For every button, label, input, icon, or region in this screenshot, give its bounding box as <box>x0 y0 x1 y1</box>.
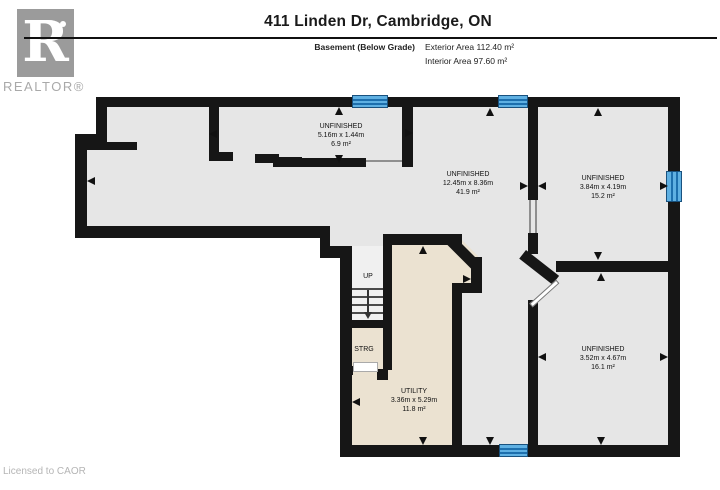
dim-arrow-right-icon <box>660 182 668 190</box>
dim-arrow-left-icon <box>538 182 546 190</box>
door-jamb-line <box>535 200 537 233</box>
wall <box>209 152 233 161</box>
dim-arrow-right-icon <box>463 275 471 283</box>
wall <box>352 320 392 328</box>
window <box>666 171 682 202</box>
window-pane-line <box>499 99 527 101</box>
room-name: UNFINISHED <box>553 345 653 354</box>
room-area: 6.9 m² <box>291 140 391 149</box>
room-area: 41.9 m² <box>418 188 518 197</box>
room-label-unfinished-top-right: UNFINISHED 3.84m x 4.19m 15.2 m² <box>553 174 653 201</box>
room-area: 16.1 m² <box>553 363 653 372</box>
wall <box>383 234 392 370</box>
wall <box>87 142 137 150</box>
wall <box>377 369 388 380</box>
room-dims: 3.52m x 4.67m <box>553 354 653 363</box>
wall <box>528 107 538 200</box>
wall <box>528 233 538 254</box>
window-pane-line <box>500 448 527 450</box>
wall <box>75 226 330 238</box>
wall <box>345 366 353 375</box>
storage-door-opening <box>353 362 378 372</box>
room-name: UNFINISHED <box>418 170 518 179</box>
window-pane-line <box>671 172 673 201</box>
wall <box>452 283 462 445</box>
room-area: 15.2 m² <box>553 192 653 201</box>
dim-arrow-left-icon <box>209 130 217 138</box>
wall <box>402 107 413 167</box>
dim-arrow-down-icon <box>597 437 605 445</box>
room-dims: 12.45m x 8.36m <box>418 179 518 188</box>
header-rule <box>24 37 717 39</box>
room-name: UNFINISHED <box>291 122 391 131</box>
wall <box>96 97 680 107</box>
window-pane-line <box>353 99 387 101</box>
dim-arrow-up-icon <box>594 108 602 116</box>
dim-arrow-up-icon <box>419 246 427 254</box>
room-name: UNFINISHED <box>553 174 653 183</box>
dim-arrow-up-icon <box>335 107 343 115</box>
wall <box>668 97 680 457</box>
dim-arrow-right-icon <box>405 129 413 137</box>
license-text: Licensed to CAOR <box>3 466 86 477</box>
room-dims: 5.16m x 1.44m <box>291 131 391 140</box>
room-area: 11.8 m² <box>364 405 464 414</box>
storage-label: STRG <box>346 346 382 353</box>
window <box>498 95 528 108</box>
realtor-logo: R <box>17 9 74 77</box>
wall <box>300 158 366 167</box>
dim-arrow-right-icon <box>660 353 668 361</box>
floorplan-page: R REALTOR® 411 Linden Dr, Cambridge, ON … <box>0 0 720 490</box>
window-pane-line <box>500 452 527 454</box>
dim-arrow-left-icon <box>87 177 95 185</box>
stair-direction-line <box>367 290 369 313</box>
room-dims: 3.84m x 4.19m <box>553 183 653 192</box>
dim-arrow-left-icon <box>352 398 360 406</box>
window-pane-line <box>676 172 678 201</box>
window-pane-line <box>353 103 387 105</box>
stair-direction-arrow-icon <box>364 312 372 319</box>
window-pane-line <box>499 103 527 105</box>
room-label-unfinished-main: UNFINISHED 12.45m x 8.36m 41.9 m² <box>418 170 518 197</box>
dim-arrow-down-icon <box>486 437 494 445</box>
room-name: UTILITY <box>364 387 464 396</box>
room-label-utility: UTILITY 3.36m x 5.29m 11.8 m² <box>364 387 464 414</box>
window <box>499 444 528 457</box>
realtor-r-icon: R <box>17 7 74 75</box>
dim-arrow-right-icon <box>520 182 528 190</box>
room-label-unfinished-top: UNFINISHED 5.16m x 1.44m 6.9 m² <box>291 122 391 149</box>
dim-arrow-down-icon <box>419 437 427 445</box>
dim-arrow-up-icon <box>597 273 605 281</box>
stairs-up-label: UP <box>350 273 386 280</box>
wall <box>75 134 87 238</box>
wall <box>273 157 302 167</box>
wall-opening-line <box>366 160 402 162</box>
dim-arrow-down-icon <box>594 252 602 260</box>
dim-arrow-down-icon <box>335 155 343 163</box>
floorplan: UP STRG UNFINISHED 5.16m x 1.44m 6.9 m² … <box>0 0 720 490</box>
dim-arrow-up-icon <box>486 108 494 116</box>
window <box>352 95 388 108</box>
wall <box>556 261 668 272</box>
dim-arrow-left-icon <box>538 353 546 361</box>
room-label-unfinished-bottom-right: UNFINISHED 3.52m x 4.67m 16.1 m² <box>553 345 653 372</box>
room-dims: 3.36m x 5.29m <box>364 396 464 405</box>
door-jamb-line <box>529 200 531 233</box>
wall <box>528 300 538 445</box>
trademark-dot-icon <box>60 21 66 27</box>
